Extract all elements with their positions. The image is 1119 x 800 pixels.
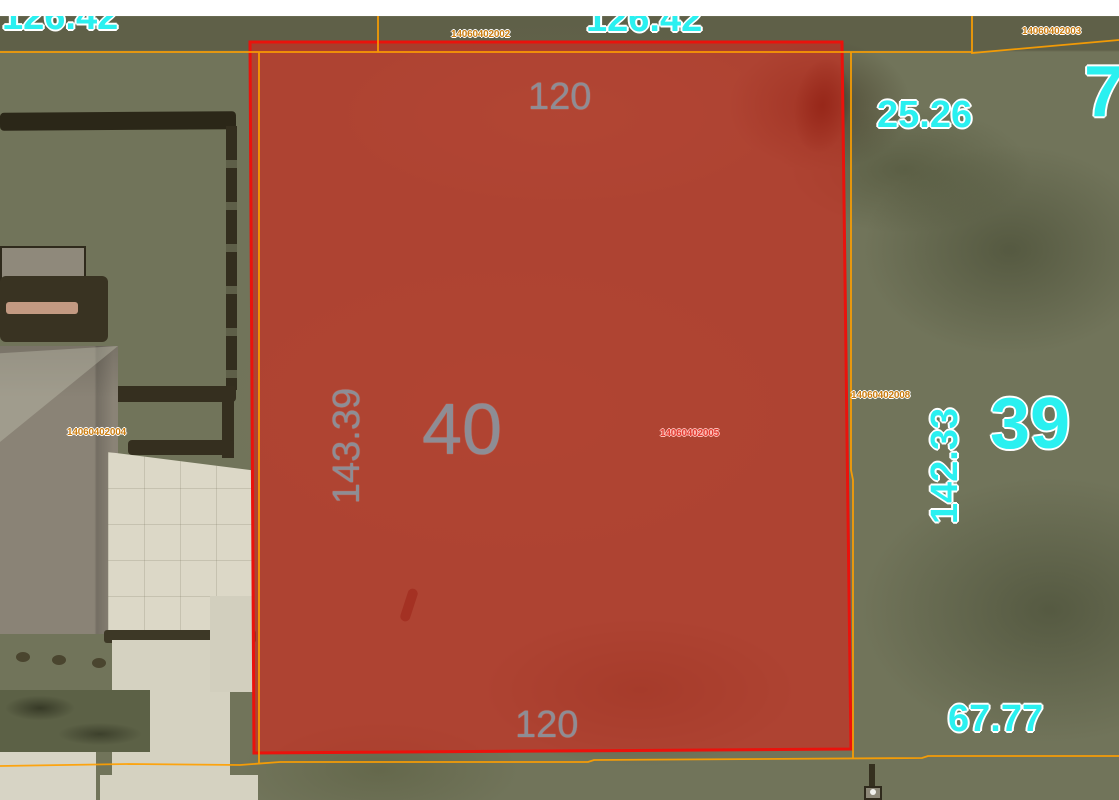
parcel-id-label: 14060402002 [451,30,510,40]
dimension-label: 25.26 [877,96,972,134]
parcel-id-label: 14060402008 [851,391,910,401]
selected-parcel-id-label: 14060402005 [660,429,719,439]
dimension-label: 67.77 [948,700,1043,738]
selected-parcel-number-label: 40 [422,394,502,466]
parcel-number-label: 74 [1084,56,1119,128]
parcel-id-label: 14060402004 [67,428,126,438]
parcel-id-label: 14060402003 [1022,27,1081,37]
dimension-label: 143.39 [328,381,366,511]
top-white-band [0,0,1119,16]
dimension-label: 142.33 [926,401,964,531]
map-viewport: 126.42 126.42 25.26 74 142.33 39 67.77 1… [0,0,1119,800]
parcel-number-label: 39 [990,388,1070,460]
dimension-label: 120 [515,706,578,744]
map-canvas[interactable]: 126.42 126.42 25.26 74 142.33 39 67.77 1… [0,0,1119,800]
dimension-label: 120 [528,78,591,116]
